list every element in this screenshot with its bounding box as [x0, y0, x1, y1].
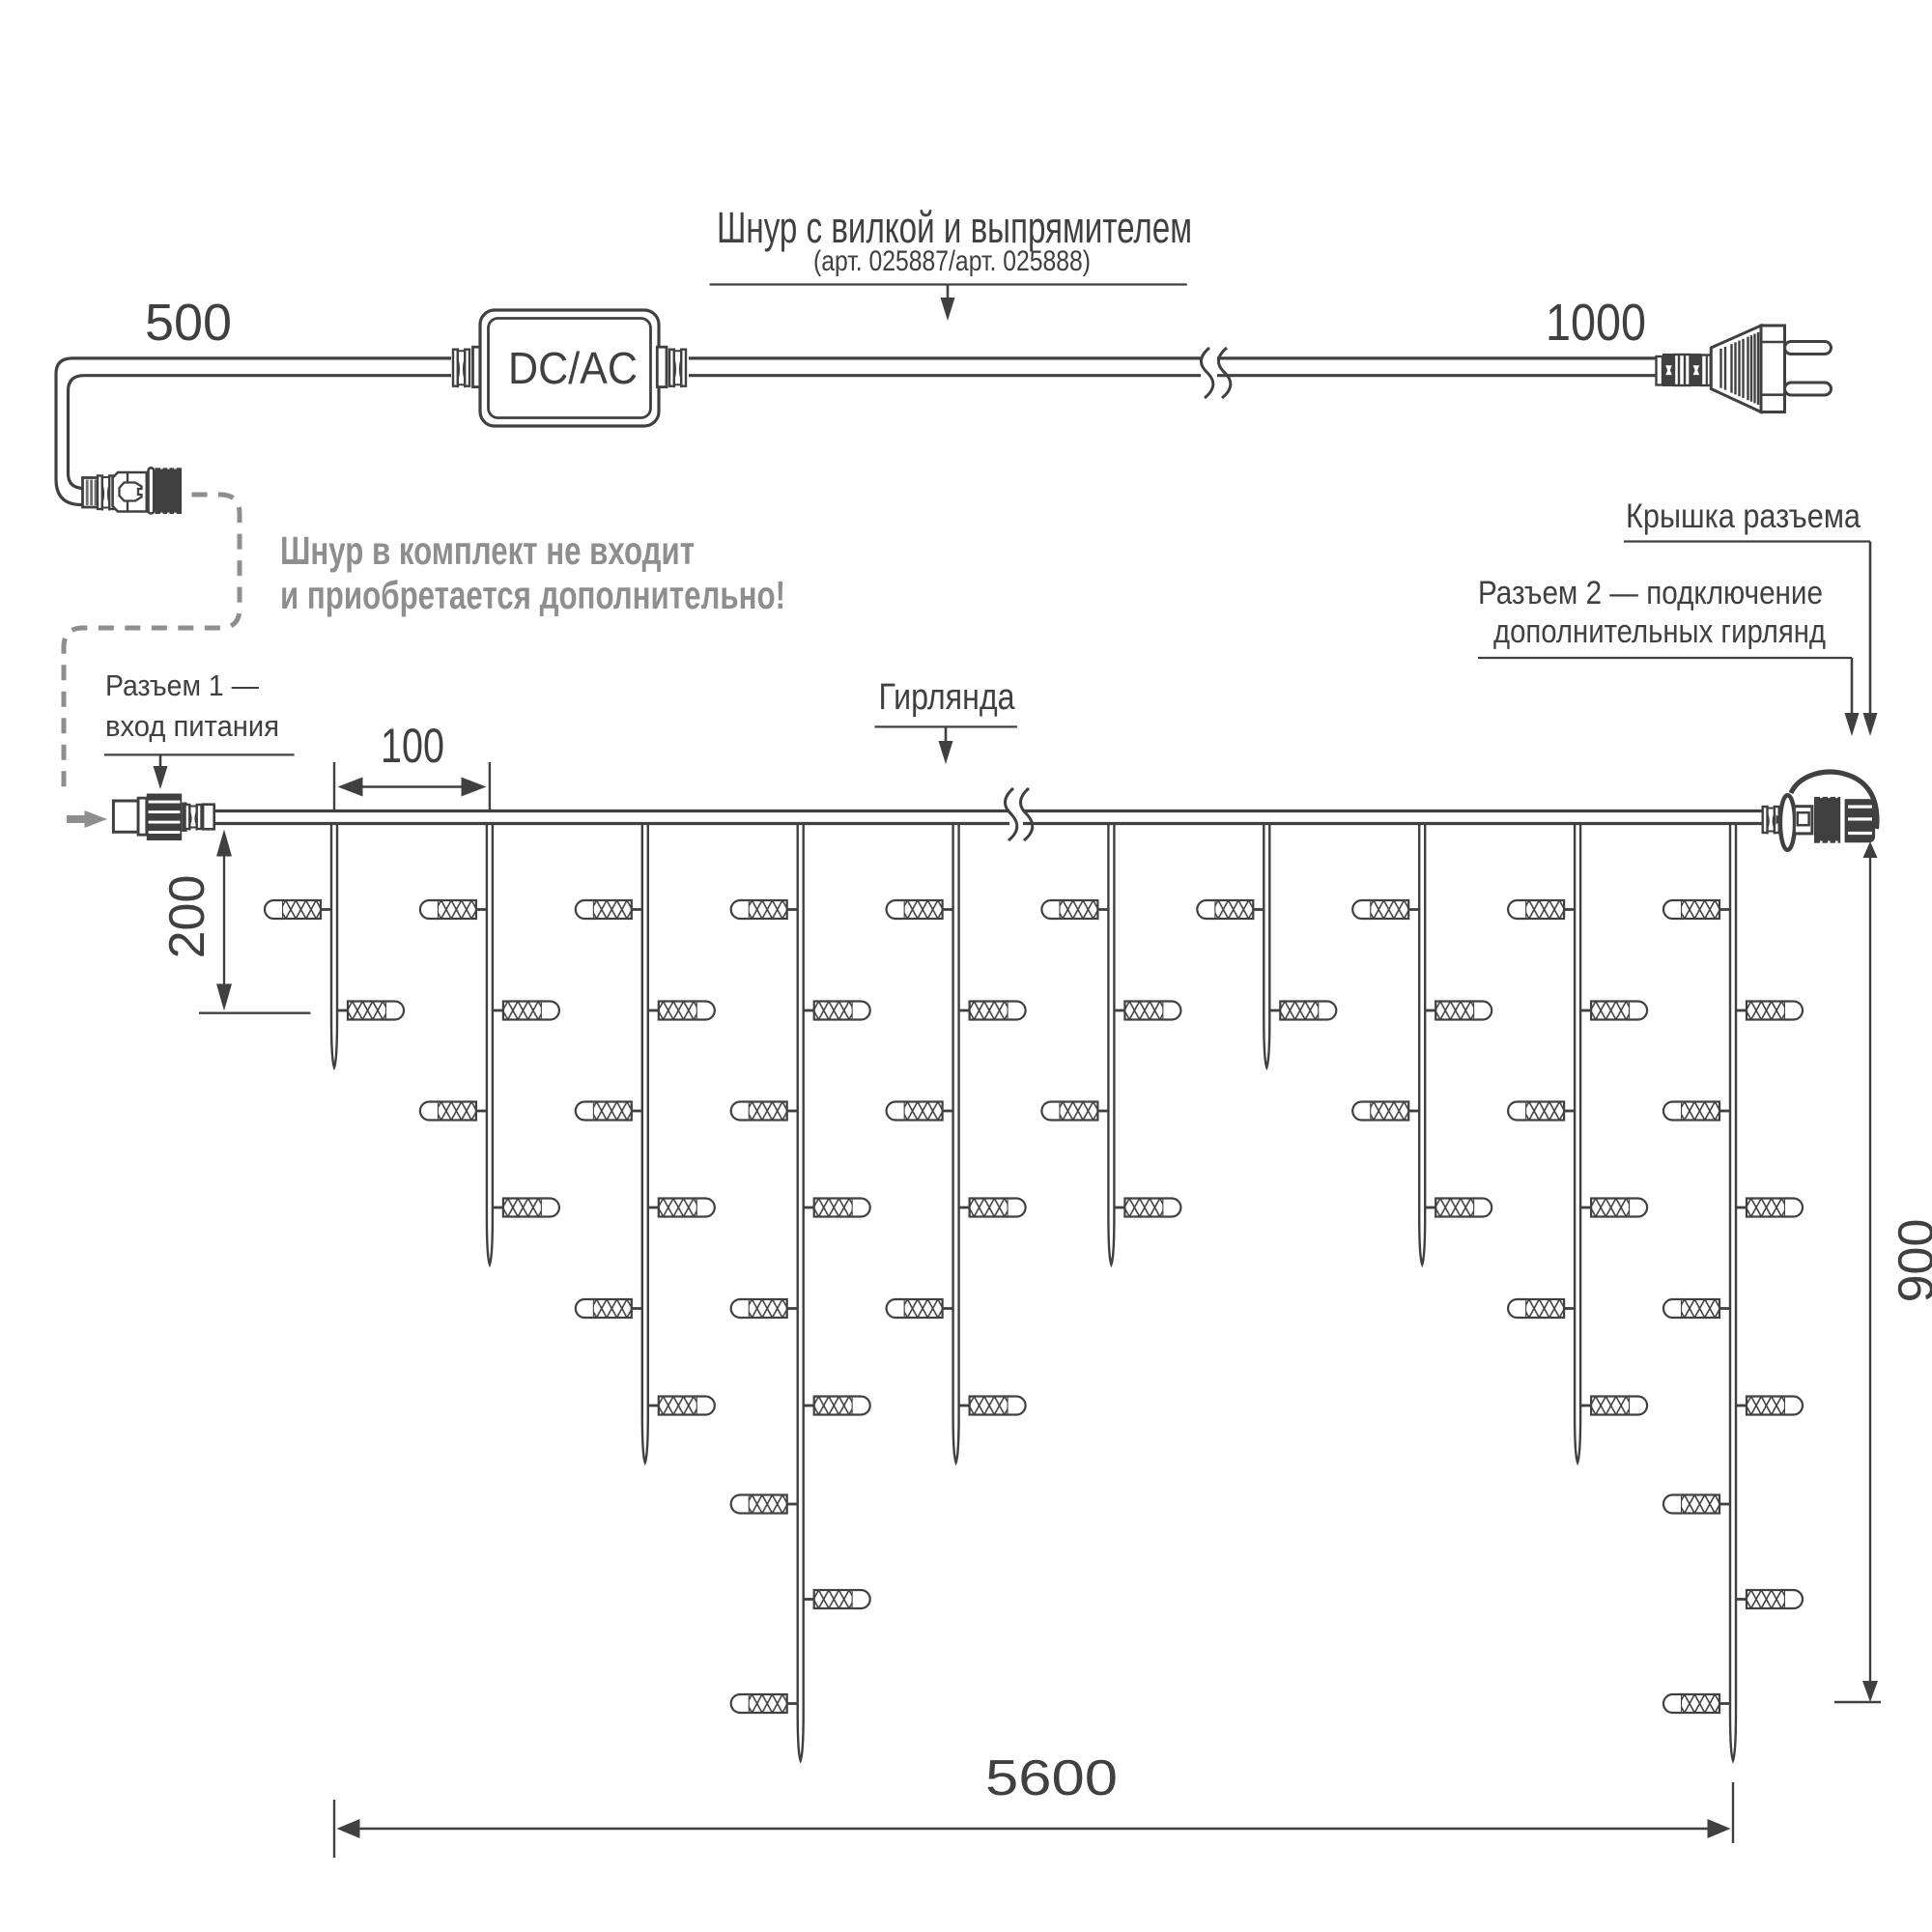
svg-text:(арт. 025887/арт. 025888): (арт. 025887/арт. 025888): [813, 245, 1091, 277]
svg-text:Разъем 2 — подключение: Разъем 2 — подключение: [1478, 575, 1823, 611]
svg-text:дополнительных гирлянд: дополнительных гирлянд: [1493, 613, 1826, 650]
svg-text:вход питания: вход питания: [105, 709, 279, 743]
svg-text:Гирлянда: Гирлянда: [879, 677, 1016, 718]
svg-text:и приобретается дополнительно!: и приобретается дополнительно!: [280, 573, 785, 617]
svg-text:Шнур в комплект не входит: Шнур в комплект не входит: [280, 528, 695, 573]
svg-text:200: 200: [159, 875, 215, 959]
svg-text:500: 500: [145, 294, 232, 352]
svg-text:Разъем 1 —: Разъем 1 —: [105, 668, 259, 702]
svg-text:Крышка разъема: Крышка разъема: [1626, 497, 1861, 535]
svg-text:900: 900: [1889, 1219, 1932, 1303]
svg-text:100: 100: [381, 719, 444, 773]
svg-text:5600: 5600: [985, 1750, 1118, 1806]
svg-text:1000: 1000: [1546, 294, 1646, 352]
svg-text:DC/AC: DC/AC: [508, 343, 638, 393]
